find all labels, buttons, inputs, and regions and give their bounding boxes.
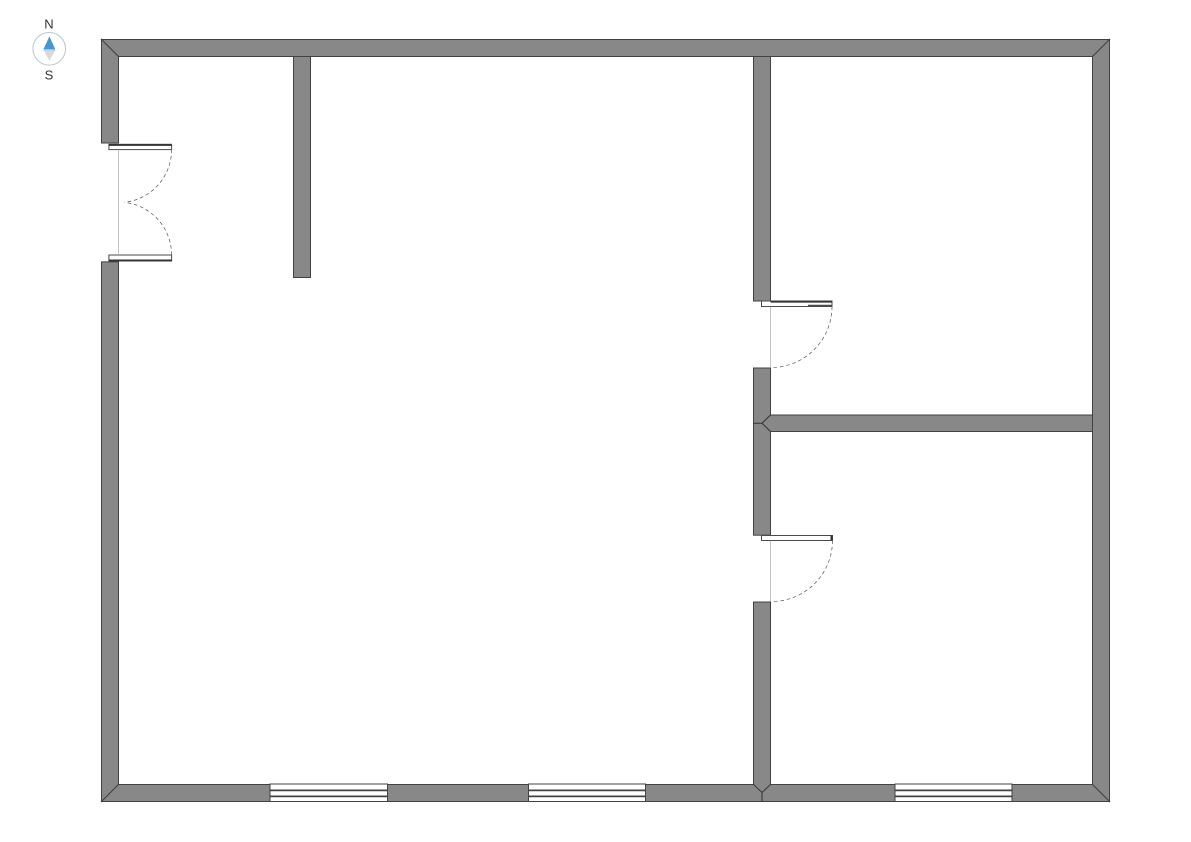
svg-text:S: S — [45, 67, 54, 82]
svg-text:N: N — [44, 17, 53, 32]
